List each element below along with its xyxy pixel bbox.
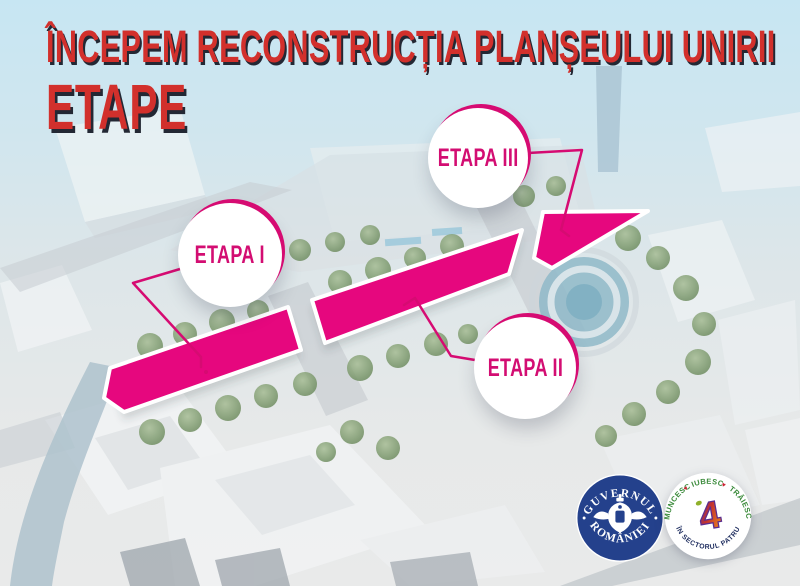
sector4-logo: MUNCESC ♥ IUBESC ♥ TRĂIESC ÎN SECTORUL P… bbox=[662, 470, 754, 562]
etapa-3-badge: ETAPA III bbox=[428, 108, 528, 208]
poster-canvas: ÎNCEPEM RECONSTRUCȚIA PLANȘEULUI UNIRII … bbox=[0, 0, 800, 586]
etapa-1-label: ETAPA I bbox=[195, 241, 265, 270]
etapa-2-badge: ETAPA II bbox=[474, 317, 576, 419]
etapa-3-zone bbox=[534, 211, 648, 268]
etapa-3-label: ETAPA III bbox=[438, 144, 519, 173]
seal-right-dot bbox=[654, 517, 657, 520]
government-logo: GUVERNUL ROMÂNIEI bbox=[574, 472, 666, 564]
etapa-1-zone bbox=[104, 307, 301, 412]
etapa-1-badge: ETAPA I bbox=[178, 203, 282, 307]
etapa-2-label: ETAPA II bbox=[487, 354, 563, 383]
seal-left-dot bbox=[583, 517, 586, 520]
